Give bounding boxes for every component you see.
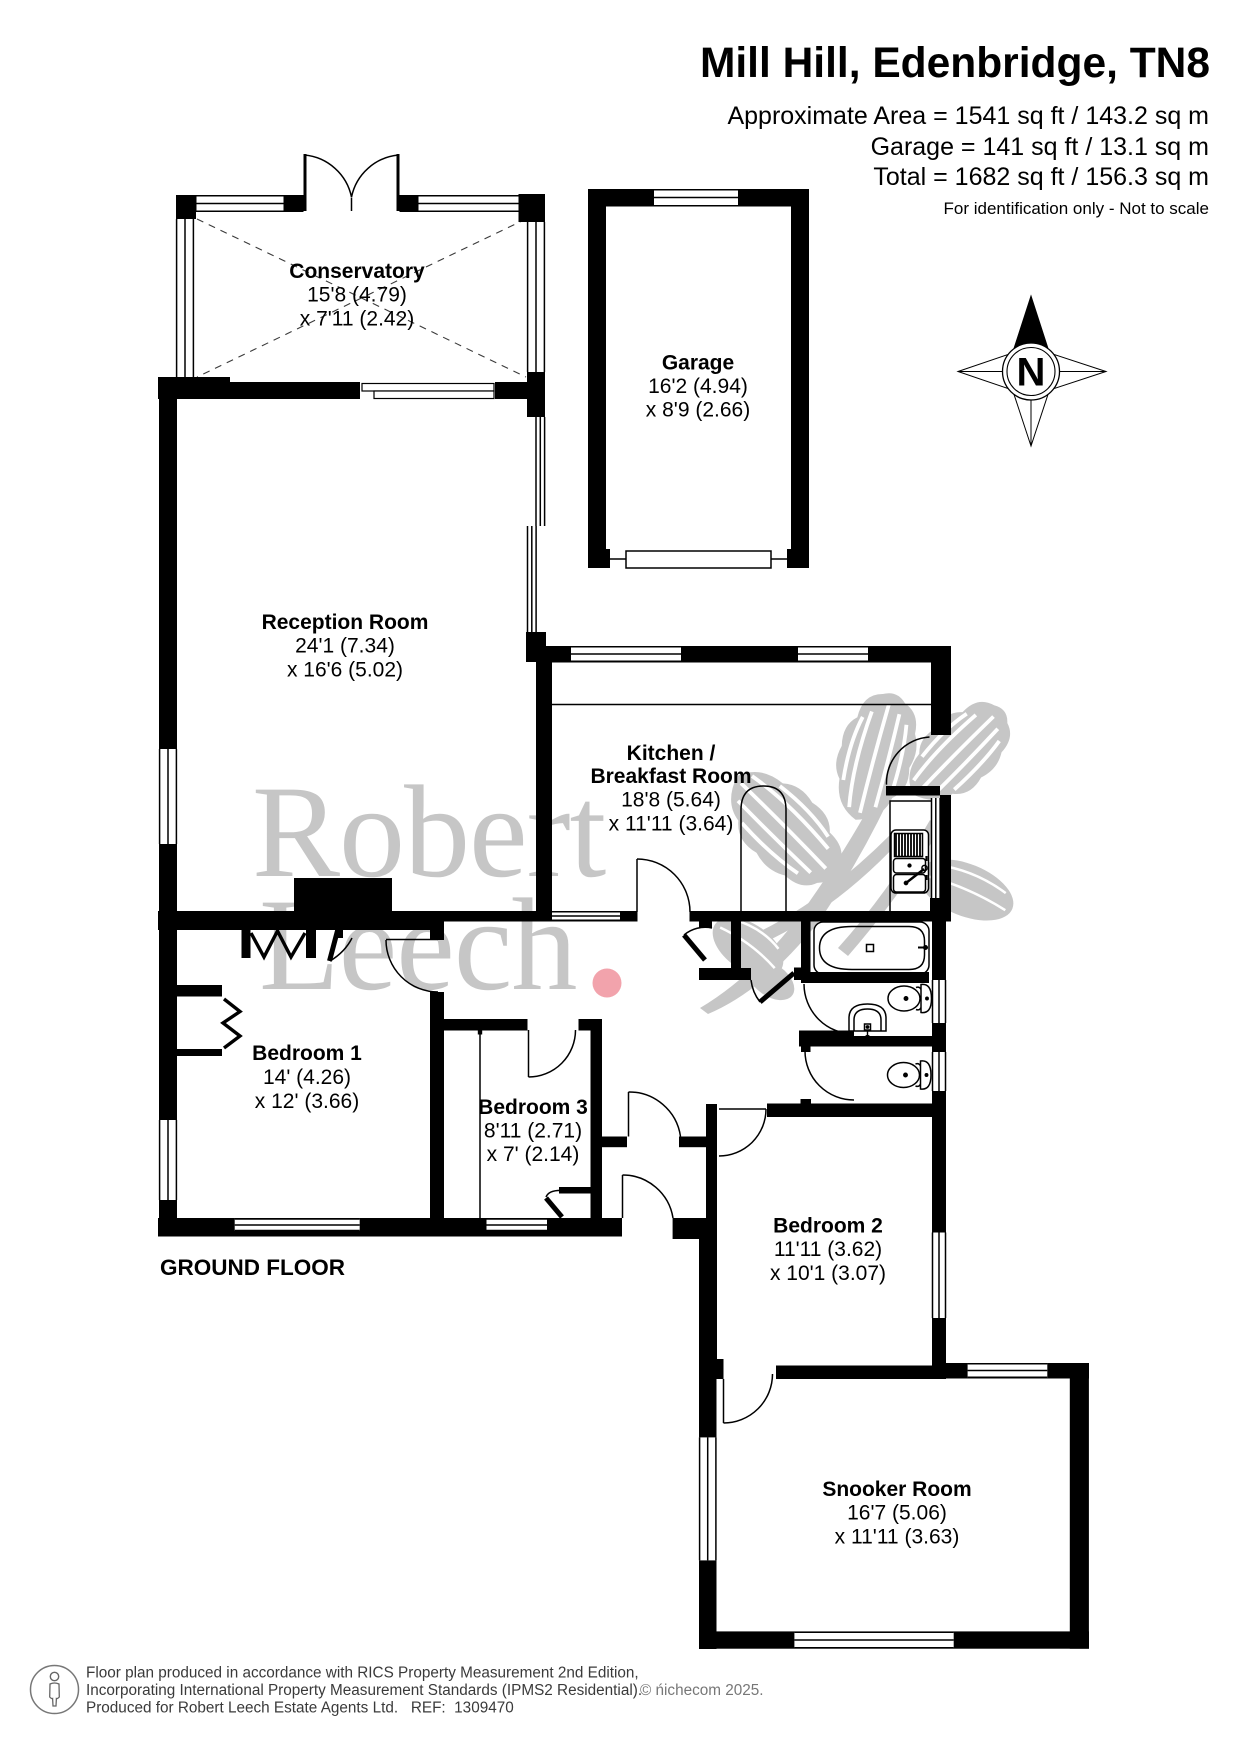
svg-text:16'7 (5.06): 16'7 (5.06) — [847, 1502, 947, 1525]
svg-text:Incorporating International Pr: Incorporating International Property Mea… — [86, 1682, 642, 1699]
svg-text:Reception Room: Reception Room — [262, 611, 429, 634]
svg-text:Conservatory: Conservatory — [289, 260, 425, 283]
svg-text:Mill Hill, Edenbridge, TN8: Mill Hill, Edenbridge, TN8 — [700, 40, 1210, 87]
svg-text:Garage: Garage — [662, 352, 734, 375]
svg-text:x 11'11 (3.64): x 11'11 (3.64) — [609, 812, 734, 835]
svg-text:Snooker Room: Snooker Room — [822, 1478, 971, 1501]
svg-text:GROUND FLOOR: GROUND FLOOR — [160, 1255, 345, 1280]
svg-text:8'11 (2.71): 8'11 (2.71) — [484, 1120, 582, 1143]
svg-text:Bedroom 3: Bedroom 3 — [478, 1096, 588, 1119]
svg-text:N: N — [1017, 351, 1046, 395]
svg-text:x 7' (2.14): x 7' (2.14) — [487, 1143, 580, 1166]
svg-text:14' (4.26): 14' (4.26) — [263, 1066, 351, 1089]
svg-text:Approximate Area = 1541 sq ft: Approximate Area = 1541 sq ft / 143.2 sq… — [727, 102, 1209, 130]
svg-text:Floor plan produced in accorda: Floor plan produced in accordance with R… — [86, 1665, 639, 1682]
svg-text:15'8 (4.79): 15'8 (4.79) — [307, 284, 407, 307]
svg-text:18'8 (5.64): 18'8 (5.64) — [621, 789, 721, 812]
svg-text:x 12' (3.66): x 12' (3.66) — [255, 1090, 359, 1113]
svg-text:x 11'11 (3.63): x 11'11 (3.63) — [835, 1525, 960, 1548]
svg-text:© ńichecom 2025.: © ńichecom 2025. — [640, 1682, 764, 1699]
svg-text:Breakfast Room: Breakfast Room — [590, 765, 751, 788]
svg-text:Produced for Robert Leech Esta: Produced for Robert Leech Estate Agents … — [86, 1700, 514, 1717]
svg-text:Bedroom 1: Bedroom 1 — [252, 1042, 362, 1065]
svg-text:Kitchen /: Kitchen / — [627, 742, 716, 765]
svg-text:For identification only - Not: For identification only - Not to scale — [943, 199, 1209, 218]
svg-text:16'2 (4.94): 16'2 (4.94) — [648, 375, 748, 398]
svg-text:24'1 (7.34): 24'1 (7.34) — [295, 635, 395, 658]
svg-text:x 8'9 (2.66): x 8'9 (2.66) — [646, 399, 750, 422]
svg-text:x 16'6 (5.02): x 16'6 (5.02) — [287, 658, 403, 681]
svg-text:Total = 1682 sq ft / 156.3 sq: Total = 1682 sq ft / 156.3 sq m — [873, 163, 1209, 191]
svg-text:Garage = 141 sq ft / 13.1 sq m: Garage = 141 sq ft / 13.1 sq m — [871, 133, 1209, 161]
svg-text:x 10'1 (3.07): x 10'1 (3.07) — [770, 1262, 886, 1285]
svg-text:11'11 (3.62): 11'11 (3.62) — [774, 1238, 882, 1261]
svg-text:Bedroom 2: Bedroom 2 — [773, 1215, 883, 1238]
svg-text:x 7'11 (2.42): x 7'11 (2.42) — [300, 307, 415, 330]
